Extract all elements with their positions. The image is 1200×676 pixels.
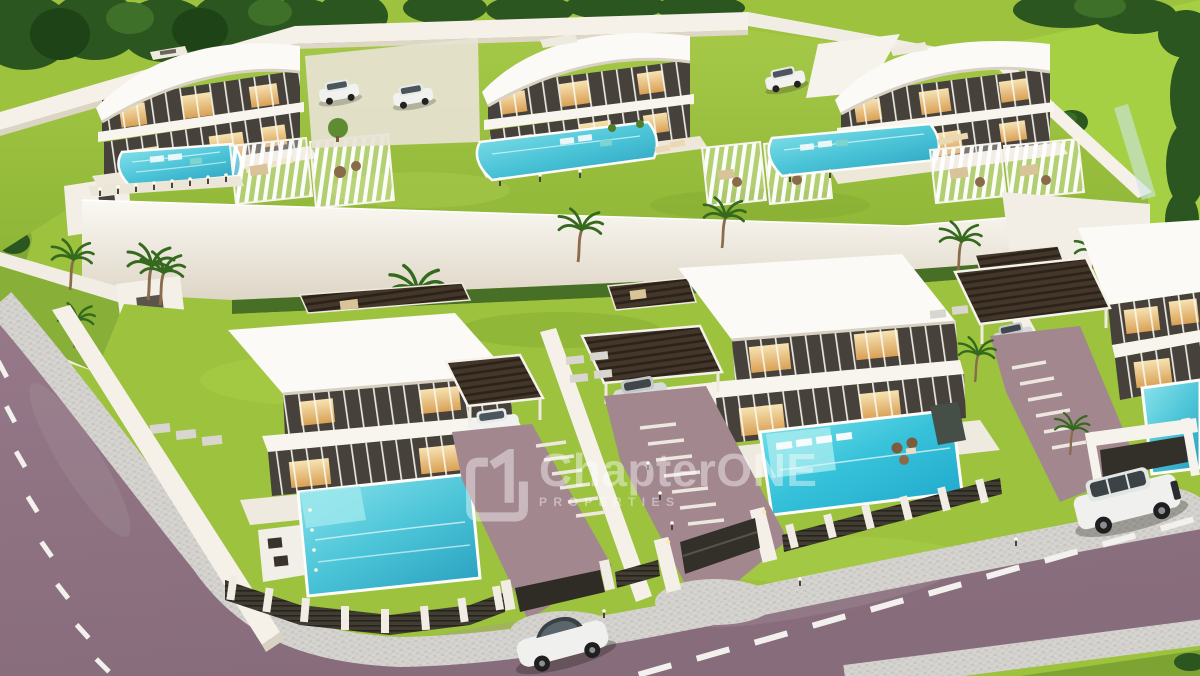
render-canvas: ChapterONE PROPERTIES — [0, 0, 1200, 676]
scene-svg — [0, 0, 1200, 676]
courtyard — [305, 38, 480, 148]
outdoor-kitchen — [258, 525, 305, 582]
